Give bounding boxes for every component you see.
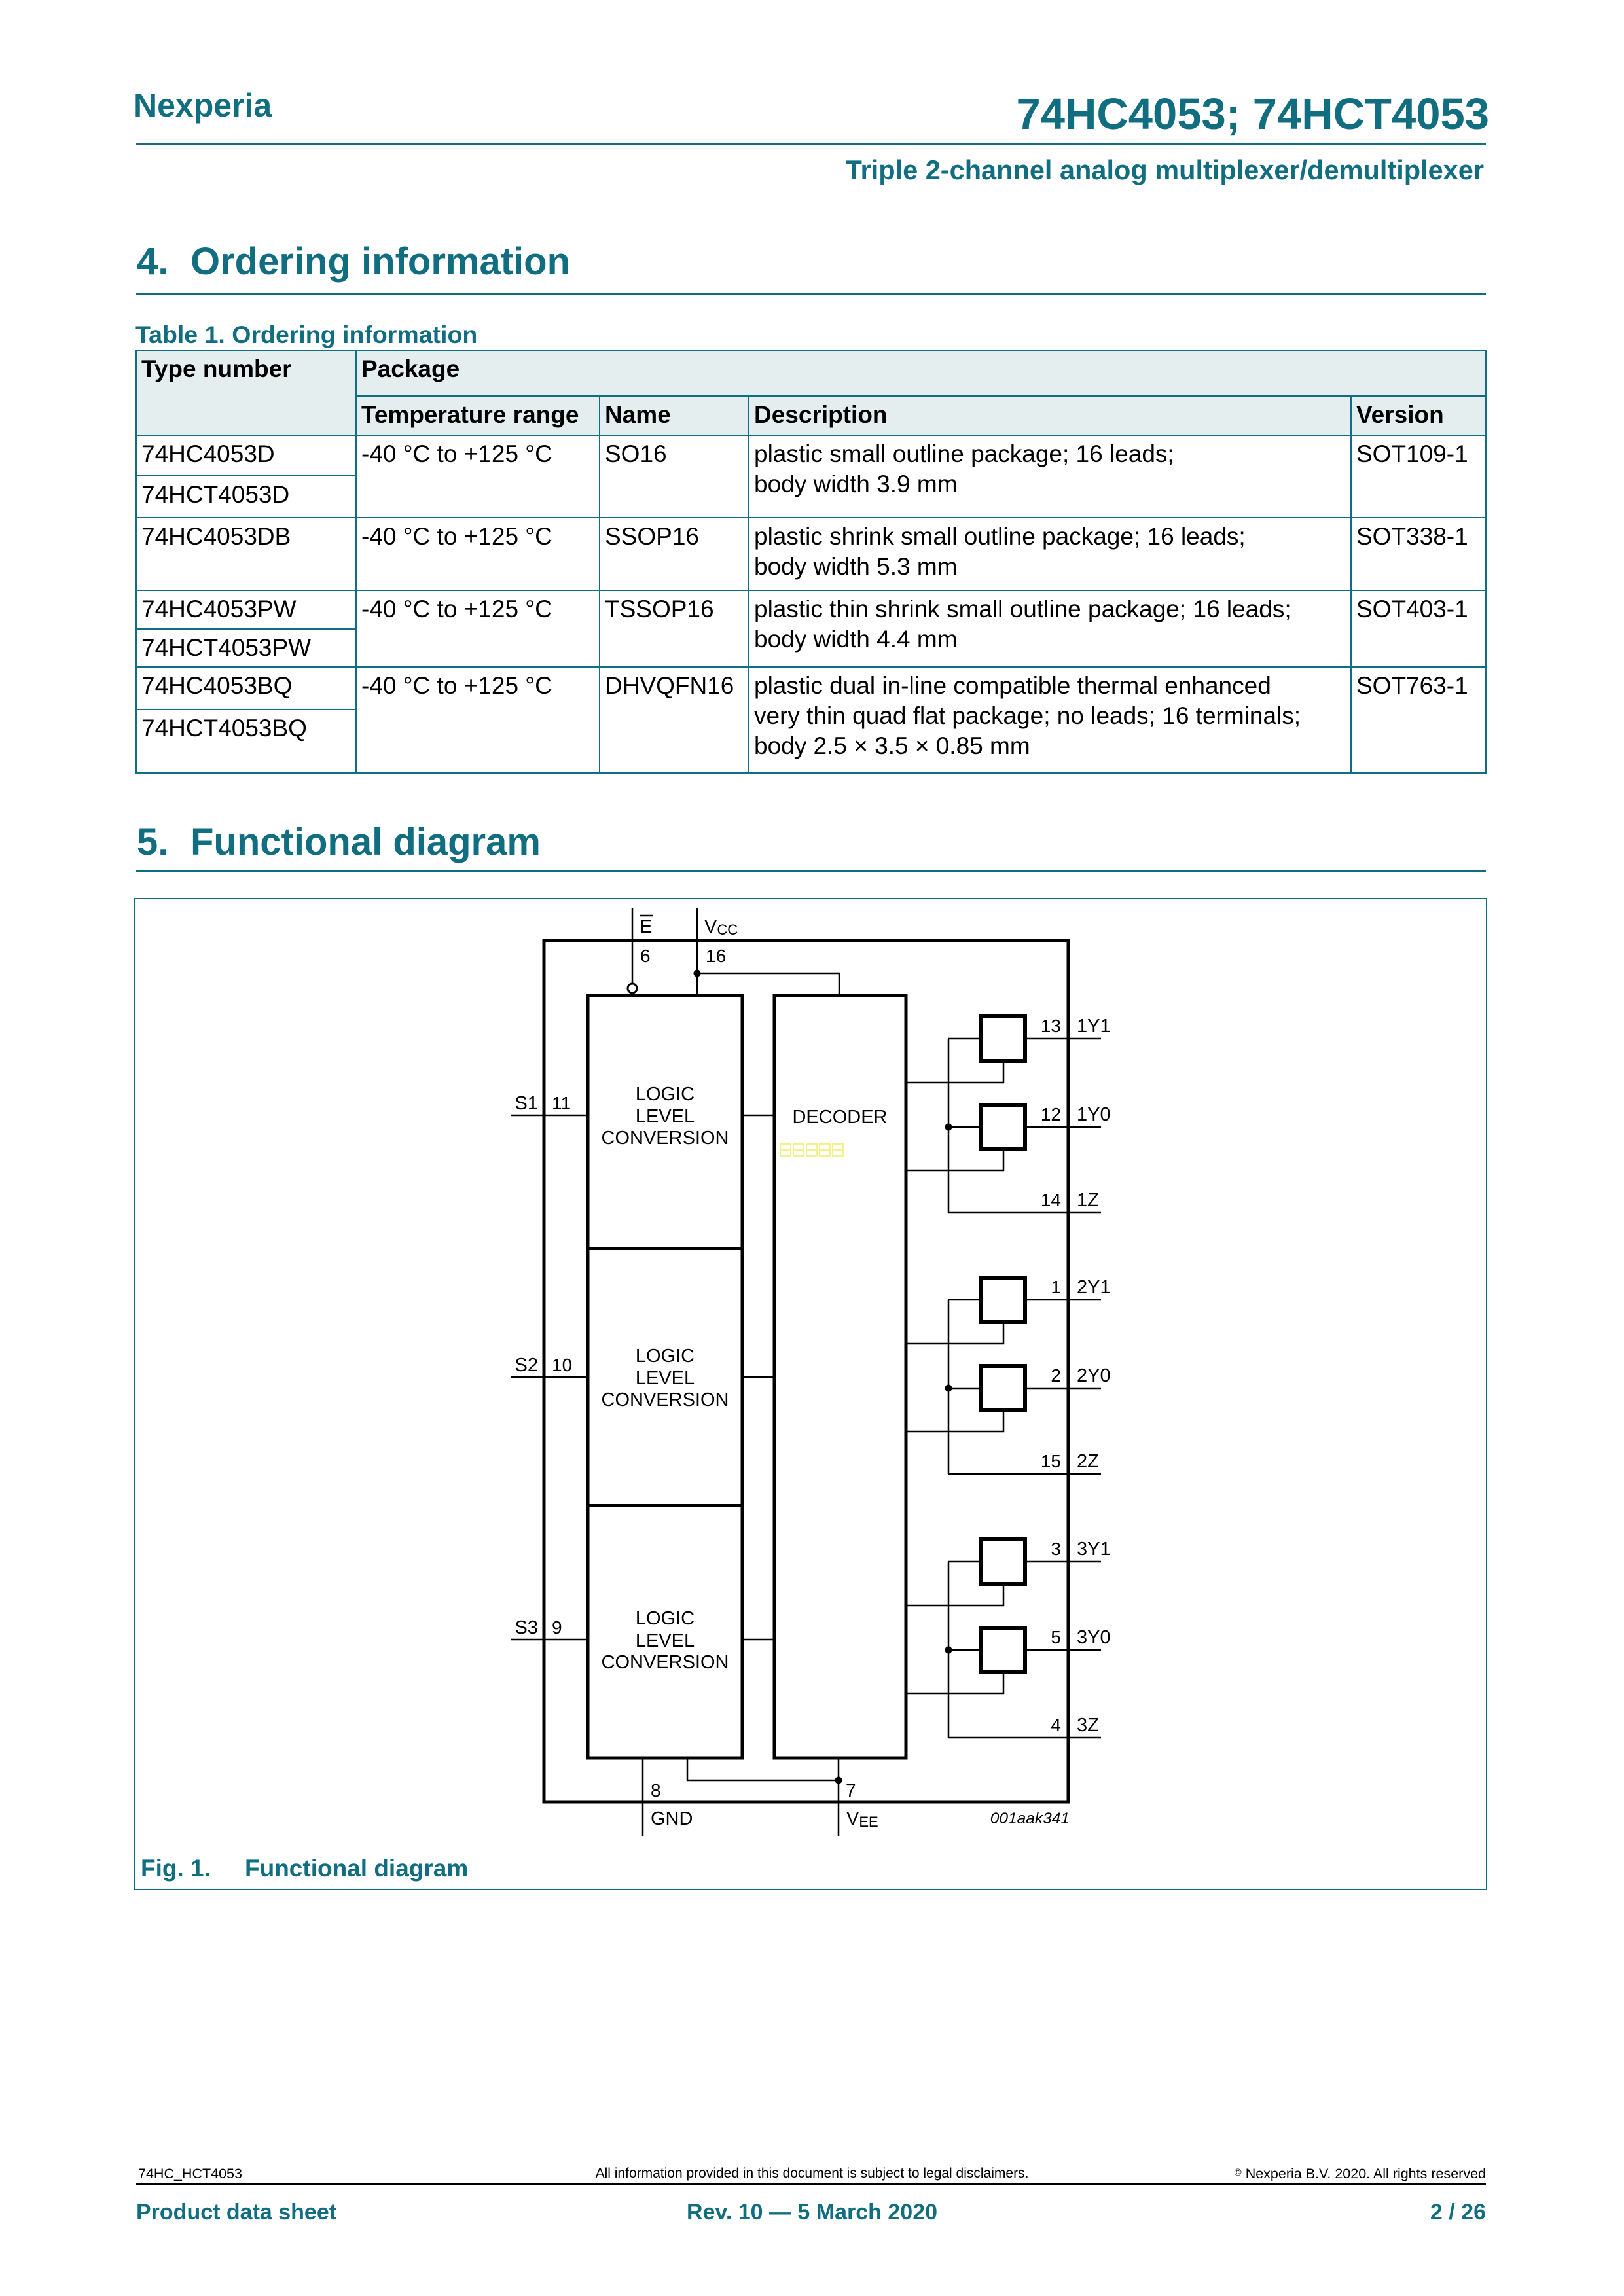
svg-text:11: 11: [552, 1093, 571, 1113]
svg-text:S1: S1: [515, 1093, 538, 1114]
svg-text:1: 1: [1051, 1277, 1061, 1297]
svg-text:4: 4: [1051, 1715, 1061, 1735]
svg-text:14: 14: [1041, 1190, 1061, 1210]
svg-text:GND: GND: [651, 1808, 693, 1829]
svg-text:2Y1: 2Y1: [1077, 1277, 1111, 1298]
svg-text:LOGIC: LOGIC: [636, 1608, 695, 1629]
svg-text:CONVERSION: CONVERSION: [602, 1390, 729, 1410]
svg-text:8: 8: [651, 1780, 661, 1801]
svg-text:S2: S2: [515, 1355, 538, 1376]
svg-text:3Y1: 3Y1: [1077, 1539, 1111, 1560]
svg-text:3Y0: 3Y0: [1077, 1627, 1111, 1648]
svg-text:15: 15: [1041, 1451, 1061, 1471]
svg-text:VEE: VEE: [846, 1808, 878, 1830]
svg-text:13: 13: [1041, 1016, 1061, 1036]
svg-text:1Y1: 1Y1: [1077, 1016, 1111, 1037]
svg-text:10: 10: [552, 1355, 572, 1375]
svg-text:CONVERSION: CONVERSION: [602, 1128, 729, 1149]
svg-text:LEVEL: LEVEL: [636, 1106, 695, 1127]
svg-text:1Y0: 1Y0: [1077, 1104, 1111, 1125]
svg-text:CONVERSION: CONVERSION: [602, 1652, 729, 1673]
svg-text:16: 16: [706, 946, 726, 966]
svg-text:5: 5: [1051, 1627, 1061, 1647]
svg-text:001aak341: 001aak341: [990, 1810, 1070, 1827]
svg-text:E: E: [640, 916, 652, 937]
svg-text:2Z: 2Z: [1077, 1451, 1099, 1472]
svg-text:3: 3: [1051, 1539, 1061, 1559]
svg-text:LEVEL: LEVEL: [636, 1368, 695, 1389]
svg-text:2: 2: [1051, 1365, 1061, 1386]
svg-text:DECODER: DECODER: [792, 1107, 887, 1128]
svg-text:2Y0: 2Y0: [1077, 1365, 1111, 1386]
svg-text:7: 7: [846, 1780, 856, 1801]
svg-text:1Z: 1Z: [1077, 1190, 1099, 1211]
svg-text:VCC: VCC: [704, 916, 738, 938]
svg-text:LOGIC: LOGIC: [636, 1084, 695, 1105]
svg-text:S3: S3: [515, 1617, 538, 1638]
svg-text:LEVEL: LEVEL: [636, 1630, 695, 1651]
svg-text:LOGIC: LOGIC: [636, 1346, 695, 1367]
svg-text:6: 6: [640, 946, 651, 966]
svg-text:9: 9: [552, 1617, 562, 1638]
svg-text:3Z: 3Z: [1077, 1715, 1099, 1736]
svg-text:12: 12: [1041, 1104, 1061, 1124]
